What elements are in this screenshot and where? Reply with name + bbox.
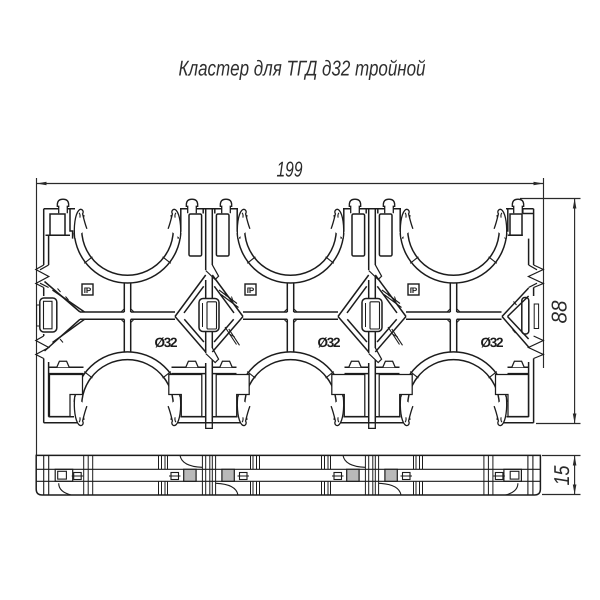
svg-text:ГР: ГР bbox=[84, 286, 92, 295]
svg-text:15: 15 bbox=[550, 465, 574, 486]
svg-text:ГР: ГР bbox=[410, 286, 418, 295]
svg-text:Ø32: Ø32 bbox=[155, 335, 178, 350]
svg-text:88: 88 bbox=[548, 300, 572, 323]
svg-text:ГР: ГР bbox=[247, 286, 255, 295]
svg-text:Ø32: Ø32 bbox=[481, 335, 504, 350]
svg-text:Ø32: Ø32 bbox=[318, 335, 341, 350]
svg-text:Кластер для ТГД д32 тройной: Кластер для ТГД д32 тройной bbox=[179, 57, 426, 81]
svg-text:199: 199 bbox=[277, 158, 303, 182]
